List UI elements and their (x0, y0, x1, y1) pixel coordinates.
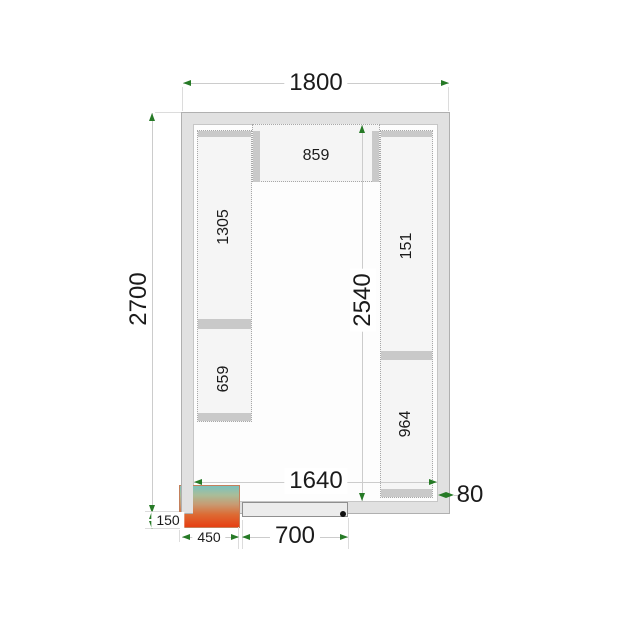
shelf-left-top-support (198, 131, 251, 137)
ext-line-door-right (348, 518, 349, 549)
shelf-right-top-support (381, 131, 432, 137)
shelf-right-bottom-support (381, 489, 432, 497)
dim-outer-width-label: 1800 (284, 70, 347, 96)
arrow-inner-width-right (429, 479, 437, 485)
door-pivot-dot (340, 511, 346, 517)
ext-line-width-right (448, 87, 449, 111)
shelf-top-left-support (253, 131, 260, 182)
arrow-unit-left (182, 534, 190, 540)
arrow-inner-depth-bottom (359, 493, 365, 501)
shelf-left-upper-label: 1305 (216, 209, 232, 245)
ext-line-depth-top (155, 112, 181, 113)
arrow-wall-right (446, 492, 454, 498)
arrow-wall-left (438, 492, 446, 498)
dim-overhang-label: 150 (151, 512, 184, 528)
arrow-door-right (340, 534, 348, 540)
shelf-top-right-support (372, 131, 379, 182)
dim-wall-thickness-label: 80 (457, 483, 484, 507)
shelf-left-mid-support (198, 319, 251, 329)
ext-line-unit-left (179, 530, 180, 542)
shelf-left-lower-label: 659 (216, 366, 232, 393)
shelf-right-lower-label: 964 (398, 411, 414, 438)
cold-room-floor-plan: 1305 659 859 151 964 1800 2700 2540 1640… (0, 0, 625, 625)
shelf-right-upper-label: 151 (399, 233, 415, 260)
arrow-depth-top (149, 113, 155, 121)
arrow-width-right (441, 80, 449, 86)
ext-line-width-left (182, 87, 183, 111)
dim-unit-width-label: 450 (192, 529, 225, 545)
shelf-right (380, 130, 433, 498)
arrow-unit-right (231, 534, 239, 540)
dim-inner-depth-label: 2540 (350, 268, 376, 331)
arrow-door-left (242, 534, 250, 540)
shelf-left-bottom-support (198, 413, 251, 421)
shelf-top-label: 859 (303, 148, 330, 164)
dim-outer-depth-label: 2700 (126, 267, 152, 330)
arrow-width-left (183, 80, 191, 86)
dim-line-outer-depth (152, 113, 153, 513)
dim-door-width-label: 700 (270, 523, 320, 549)
dim-inner-width-label: 1640 (284, 468, 347, 494)
arrow-inner-depth-top (359, 125, 365, 133)
left-wall-over-unit (181, 485, 193, 514)
shelf-right-mid-support (381, 351, 432, 360)
door-panel (242, 502, 348, 517)
